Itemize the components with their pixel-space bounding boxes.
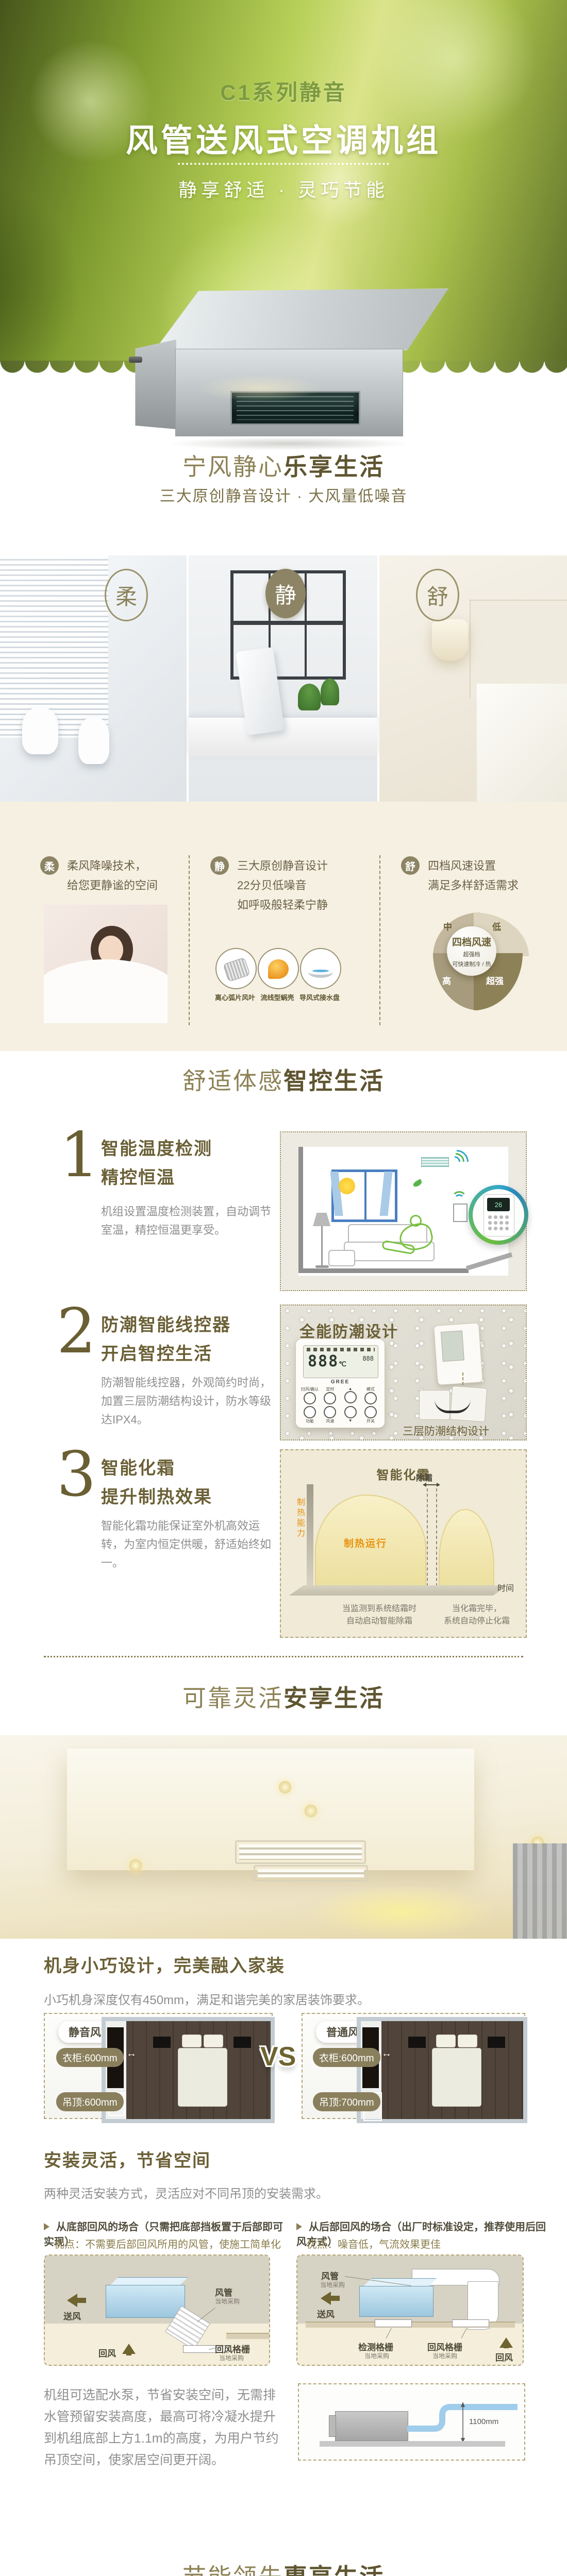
lcd-temp: 26 — [495, 1201, 502, 1209]
s2-title-light: 舒适体感 — [182, 1067, 283, 1094]
photo-blinds — [0, 555, 108, 738]
column-divider — [189, 855, 190, 1025]
supply-arrow-bar — [71, 2298, 86, 2303]
page-title: 风管送风式空调机组 — [0, 114, 567, 161]
mini-badge-soft: 柔 — [40, 856, 59, 875]
mini-badge-char: 静 — [214, 858, 225, 873]
fan-speed-wheel: 中 低 高 超强 四档风速 超强档 可快速制冷 / 热 — [433, 912, 510, 990]
s3-title-bold: 安享生活 — [283, 1685, 385, 1711]
arrow-icon: ↔ — [381, 2048, 392, 2060]
unit-front — [106, 2285, 185, 2318]
btn-label: ▼ — [341, 1418, 360, 1423]
unit-pipe-stub — [129, 357, 142, 363]
s3-title-light: 可靠灵活 — [182, 1685, 283, 1711]
photo-lamp — [432, 619, 468, 660]
return-grille-slab — [452, 2319, 489, 2327]
pointer-line — [461, 2328, 467, 2338]
s4-title-light: 节能领先 — [182, 2564, 283, 2576]
supply-label: 送风 — [317, 2307, 335, 2320]
comparison-panel-quiet: 静音风管机 ↔ ↔ 衣柜:600mm 吊顶:600mm — [44, 2013, 273, 2119]
wheel-center-title: 四档风速 — [452, 935, 491, 948]
controller-screen — [441, 1330, 464, 1362]
defrost-dash-line — [436, 1488, 437, 1586]
defrost-ylabel: 制热能力 — [293, 1498, 306, 1539]
col-line: 满足多样舒适需求 — [428, 876, 552, 895]
downlight — [129, 1859, 142, 1872]
lcd-icon-strip — [307, 1348, 375, 1351]
ceiling-vent — [235, 1840, 366, 1864]
item1-heading1: 智能温度检测 — [101, 1134, 212, 1160]
moisture-proof-panel: 全能防潮设计 888℃ 888 GREE 扫风/确认 定时 ▲ 模式 功能 风速… — [280, 1304, 527, 1440]
mini-badge-char: 舒 — [405, 858, 415, 873]
s1-title: 宁风静心乐享生活 — [0, 448, 567, 482]
local-purchase-label: 当地采购 — [320, 2280, 345, 2289]
wheel-center-sub1: 超强档 — [463, 950, 480, 958]
btn-circle — [304, 1392, 316, 1404]
curtain-strip — [513, 1843, 567, 1939]
diagram1-advantage: 优点：不需要后部回风所用的风管，使施工简单化 — [54, 2236, 281, 2251]
item2-heading1: 防潮智能线控器 — [101, 1311, 231, 1336]
pillow — [204, 2035, 223, 2047]
badge-quiet: 静 — [265, 569, 306, 618]
compact-body: 小巧机身深度仅有450mm，满足和谐完美的家居装饰要求。 — [44, 1990, 370, 2008]
wardrobe-label: 衣柜:600mm — [56, 2048, 124, 2067]
pointer-line — [386, 2328, 392, 2338]
defrost-caption-2: 当化霜完毕， 系统自动停止化霜 — [436, 1603, 518, 1628]
cap-line: 自动启动智能除霜 — [325, 1615, 433, 1628]
defrost-xlabel: 时间 — [497, 1581, 514, 1594]
btn-circle — [364, 1392, 377, 1404]
local-purchase-label: 当地采购 — [219, 2353, 244, 2362]
supply-label: 送风 — [63, 2309, 81, 2322]
btn-circle — [344, 1391, 357, 1403]
magnifier-inner: 26 — [473, 1189, 524, 1241]
col-comfort-text: 四档风速设置 满足多样舒适需求 — [428, 856, 552, 895]
col-line: 四档风速设置 — [428, 856, 552, 876]
btn-label: ▲ — [341, 1386, 360, 1391]
s2-title: 舒适体感智控生活 — [0, 1062, 567, 1096]
ceiling-label: 吊顶:600mm — [56, 2092, 124, 2111]
btn: 模式 — [361, 1386, 380, 1404]
btn-circle — [324, 1392, 336, 1404]
item2-number: 2 — [57, 1306, 96, 1358]
controller-magnifier: 26 — [469, 1185, 528, 1245]
nightstand — [488, 2037, 505, 2048]
heating-bar-2 — [439, 1509, 494, 1587]
room-illustration: 26 — [298, 1147, 508, 1276]
controller-lcd: 26 — [487, 1198, 510, 1211]
col-line: 给您更静谧的空间 — [67, 876, 186, 895]
duvet — [178, 2048, 227, 2107]
dotted-section-divider — [44, 1656, 523, 1657]
bottom-return-diagram: 送风 回风 风管 当地采购 回风格栅 当地采购 — [44, 2255, 270, 2366]
btn: ▲ — [341, 1386, 360, 1404]
install-body: 两种灵活安装方式，灵活应对不同吊顶的安装需求。 — [44, 2183, 328, 2201]
column-divider — [379, 855, 380, 1025]
nightstand — [408, 2037, 426, 2048]
diagram2-advantage: 优点：噪音低，气流效果更佳 — [307, 2236, 523, 2251]
button-row-1: 扫风/确认 定时 ▲ 模式 — [300, 1386, 380, 1404]
window-glow — [309, 1885, 495, 1939]
defrost-dash-line — [427, 1488, 428, 1586]
item1-number: 1 — [60, 1129, 99, 1182]
quadrant-label: 低 — [492, 922, 501, 932]
room-wall — [298, 1147, 303, 1273]
btn-label: 功能 — [300, 1418, 320, 1424]
btn: 扫风/确认 — [300, 1386, 320, 1404]
wired-controller: 888℃ 888 GREE 扫风/确认 定时 ▲ 模式 功能 风速 ▼ 开关 — [295, 1338, 385, 1428]
downlight — [278, 1781, 292, 1794]
local-purchase-label: 当地采购 — [432, 2351, 457, 2360]
ceiling-vent-2 — [254, 1865, 368, 1882]
rear-return-diagram: 送风 风管 当地采购 检测格栅 当地采购 回风格栅 当地采购 回风 — [296, 2255, 524, 2366]
unit-glow — [198, 375, 323, 401]
quadrant-label: 超强 — [486, 976, 504, 986]
pump-body: 机组可选配水泵，节省安装空间，无需排水管预留安装高度，最高可将冷凝水提升到机组底… — [44, 2384, 282, 2471]
drain-pan-icon — [300, 948, 341, 989]
mini-badge-comfort: 舒 — [401, 856, 420, 875]
local-purchase-label: 当地采购 — [364, 2351, 389, 2360]
wheel-center-sub2: 可快速制冷 / 热 — [452, 960, 491, 968]
arrow-icon: ↔ — [126, 2048, 137, 2060]
controller-buttons — [487, 1214, 510, 1232]
defrost-gap-arrow — [425, 1484, 438, 1485]
wheel-center: 四档风速 超强档 可快速制冷 / 热 — [447, 926, 496, 976]
defrost-y-axis — [307, 1484, 313, 1587]
btn: ▼ — [341, 1406, 360, 1424]
volute-art — [268, 959, 289, 979]
unit-front-face — [175, 349, 403, 436]
pan-art — [308, 967, 333, 978]
col-line: 三大原创静音设计 — [237, 856, 366, 876]
sun-icon — [339, 1178, 355, 1194]
pillow — [182, 2035, 202, 2047]
vs-mark: VS — [260, 2041, 296, 2072]
fan-blade-art — [223, 957, 251, 982]
return-label: 回风 — [495, 2350, 513, 2363]
btn-circle — [324, 1406, 336, 1418]
col-line: 22分贝低噪音 — [237, 876, 366, 895]
badge-quiet-char: 静 — [275, 578, 296, 609]
s1-title-bold: 乐享生活 — [283, 453, 385, 480]
s3-title: 可靠灵活安享生活 — [0, 1680, 567, 1714]
photo-bed — [477, 684, 567, 802]
btn-label: 定时 — [320, 1386, 340, 1392]
s1-title-light: 宁风静心 — [182, 453, 283, 480]
photo-chair — [78, 718, 109, 764]
cap-line: 系统自动停止化霜 — [436, 1615, 518, 1628]
unit-left-face — [135, 340, 176, 429]
photo-chair — [22, 708, 58, 754]
moisture-caption: 三层防潮结构设计 — [403, 1423, 489, 1438]
pillow — [436, 2035, 456, 2047]
lcd-timer-value: 888 — [362, 1355, 374, 1362]
drain-lift-diagram: 1100mm — [298, 2383, 525, 2461]
item3-heading1: 智能化霜 — [101, 1454, 175, 1479]
s1-subtitle: 三大原创静音设计 · 大风量低噪音 — [0, 483, 567, 506]
photo-duvet — [44, 959, 168, 1023]
defrost-caption-1: 当监测到系统结霜时 自动启动智能除霜 — [325, 1603, 433, 1628]
return-arrow-bar — [504, 2341, 509, 2348]
install-heading: 安装灵活，节省空间 — [44, 2146, 211, 2172]
btn-label: 开关 — [361, 1418, 380, 1424]
volute-icon — [258, 948, 299, 989]
photo-sleeping-woman — [44, 905, 168, 1023]
unit-front — [359, 2286, 433, 2317]
photo-plant — [321, 679, 339, 705]
fan-blade-icon — [215, 948, 257, 989]
defrost-chart-title: 智能化霜 — [281, 1465, 526, 1483]
col-line: 柔风降噪技术， — [67, 856, 186, 876]
controller-lcd: 888℃ 888 — [303, 1345, 378, 1378]
wifi-arc-icon — [440, 1145, 473, 1178]
btn-label: 模式 — [361, 1386, 380, 1392]
bedroom-topview: ↔ ↔ — [357, 2017, 527, 2123]
lift-height-label: 1100mm — [469, 2417, 498, 2426]
unit-top-face — [155, 289, 448, 350]
col-quiet-text: 三大原创静音设计 22分贝低噪音 如呼吸般轻柔宁静 — [237, 856, 366, 915]
button-row-2: 功能 风速 ▼ 开关 — [300, 1406, 380, 1424]
cap-line: 当监测到系统结霜时 — [325, 1603, 433, 1615]
room-floor — [298, 1268, 469, 1273]
smart-temp-illustration: 26 — [280, 1131, 527, 1291]
btn-label: 风速 — [320, 1418, 340, 1424]
item3-number: 3 — [57, 1449, 96, 1501]
room-floor-edge — [466, 1252, 513, 1271]
floor-lamp-pole — [321, 1226, 323, 1266]
nightstand — [153, 2037, 171, 2048]
photo-bedroom — [379, 555, 567, 802]
product-image — [129, 289, 448, 443]
brand-logo: GREE — [296, 1379, 385, 1385]
comparison-panel-normal: 普通风管机 ↔ ↔ 衣柜:600mm 吊顶:700mm — [302, 2013, 525, 2119]
defrost-floor — [289, 1585, 508, 1596]
check-grille-slab — [375, 2319, 412, 2327]
leaf-icon — [412, 1179, 423, 1188]
item1-heading2: 精控恒温 — [101, 1163, 175, 1189]
photo-living-room — [0, 555, 187, 802]
badge-comfort-char: 舒 — [427, 580, 448, 611]
defrost-gap-label: 除霜 — [416, 1471, 432, 1483]
pillow — [458, 2035, 477, 2047]
return-arrow-bar — [126, 2347, 131, 2355]
duvet — [432, 2048, 481, 2107]
bullet-triangle-icon — [296, 2223, 306, 2230]
window-bar — [364, 1172, 366, 1219]
photo-ceiling-install — [0, 1735, 567, 1939]
quadrant-label: 中 — [443, 922, 452, 932]
mini-badge-char: 柔 — [44, 858, 55, 873]
btn-circle — [344, 1406, 357, 1418]
btn: 开关 — [361, 1406, 380, 1424]
cap-line: 当化霜完毕， — [436, 1603, 518, 1615]
pan-water-art — [312, 970, 329, 972]
badge-comfort: 舒 — [416, 569, 459, 621]
s4-title-bold: 惠享生活 — [283, 2564, 385, 2576]
btn: 风速 — [320, 1406, 340, 1424]
btn-circle — [304, 1406, 316, 1418]
mini-badge-quiet: 静 — [210, 856, 229, 875]
controller-closeup: 26 — [483, 1194, 514, 1236]
nightstand — [234, 2037, 251, 2048]
btn: 功能 — [300, 1406, 320, 1424]
wall-controller — [453, 1204, 468, 1222]
floor-lamp-base — [315, 1265, 329, 1268]
btn-circle — [364, 1406, 377, 1418]
heating-run-label: 制热运行 — [344, 1536, 387, 1550]
downlight — [304, 1804, 318, 1818]
local-purchase-label: 当地采购 — [215, 2297, 240, 2306]
ceiling-ledge — [226, 2333, 269, 2339]
item1-body: 机组设置温度检测装置，自动调节室温，精控恒温更享受。 — [101, 1202, 271, 1240]
col-line: 如呼吸般轻柔宁静 — [237, 895, 366, 915]
photo-plant — [298, 684, 321, 710]
btn-label: 扫风/确认 — [300, 1386, 320, 1392]
badge-soft-char: 柔 — [115, 580, 137, 611]
item2-body: 防潮智能线控器，外观简约时尚，加置三层防潮结构设计，防水等级达IPX4。 — [101, 1374, 276, 1429]
btn: 定时 — [320, 1386, 340, 1404]
return-label: 回风 — [98, 2346, 116, 2359]
sofa-ottoman — [328, 1250, 355, 1266]
compact-heading: 机身小巧设计，完美融入家装 — [44, 1952, 285, 1977]
item2-heading2: 开启智控生活 — [101, 1340, 212, 1365]
item3-body: 智能化霜功能保证室外机高效运转，为室内恒定供暖，舒适始终如一。 — [101, 1517, 276, 1572]
ceiling-label: 吊顶:700mm — [313, 2092, 380, 2111]
product-page: C1系列静音 风管送风式空调机组 静享舒适 · 灵巧节能 宁风静心乐享生活 三大… — [0, 0, 567, 2576]
quadrant-label: 高 — [442, 976, 451, 986]
icon-label: 导风式接水盘 — [294, 992, 345, 1002]
controller-side-photo — [433, 1323, 483, 1385]
hero-subtitle: 静享舒适 · 灵巧节能 — [0, 175, 567, 202]
bedroom-topview: ↔ ↔ — [102, 2017, 275, 2123]
floor-lamp-shade — [313, 1213, 330, 1226]
dashed-connector — [462, 1372, 463, 1385]
item3-heading2: 提升制热效果 — [101, 1483, 212, 1508]
junction-box-photo — [419, 1387, 487, 1420]
s2-title-bold: 智控生活 — [283, 1067, 385, 1094]
s4-title: 节能领先惠享生活 — [0, 2558, 567, 2576]
hero-dotted-divider — [178, 163, 389, 165]
bullet-triangle-icon — [44, 2223, 53, 2230]
supply-arrow-bar — [324, 2296, 340, 2301]
hero-series: C1系列静音 — [0, 75, 567, 107]
wardrobe-label: 衣柜:600mm — [313, 2048, 380, 2067]
defrost-chart-panel: 智能化霜 制热能力 除霜 制热运行 时间 当监测到系统结霜时 自动启动智能除霜 … — [280, 1449, 527, 1638]
col-soft-text: 柔风降噪技术， 给您更静谧的空间 — [67, 856, 186, 895]
badge-soft: 柔 — [105, 569, 148, 621]
floor-strip — [320, 2441, 505, 2447]
